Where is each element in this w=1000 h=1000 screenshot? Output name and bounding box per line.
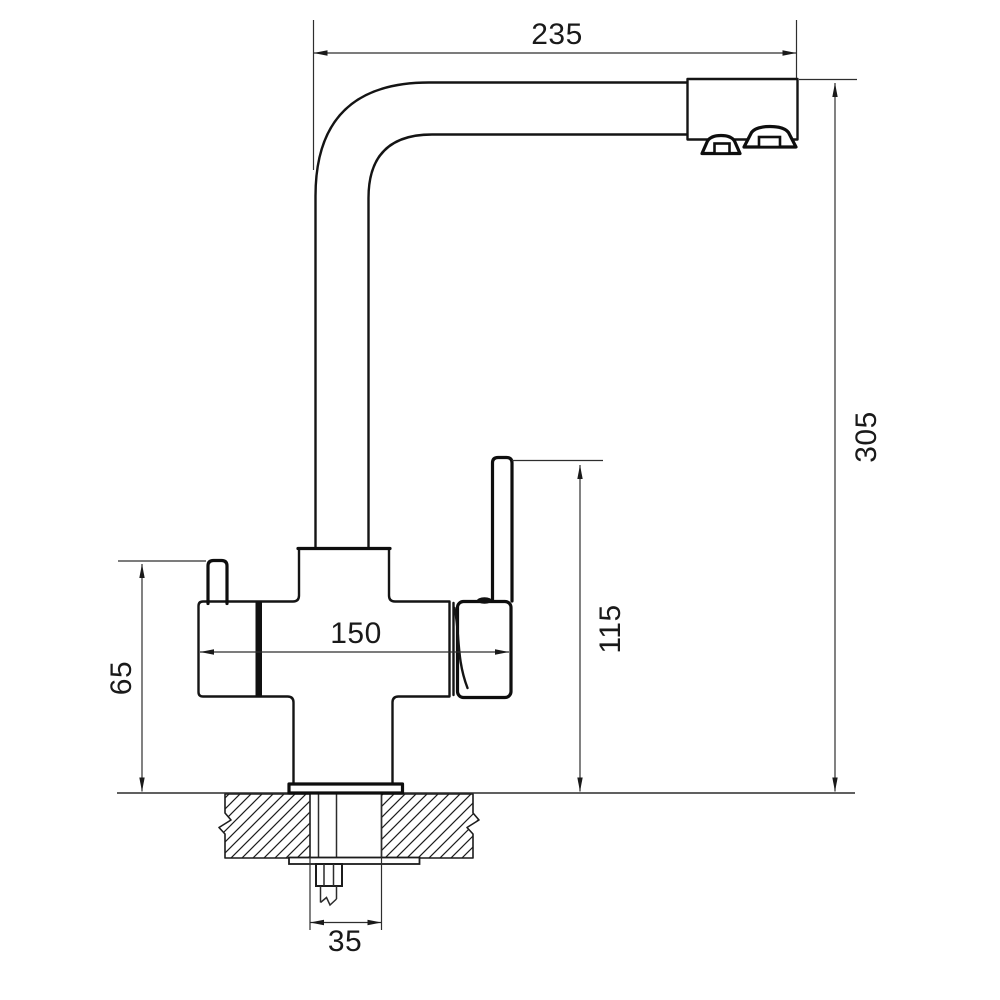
lever-pivot-dot [477,597,492,603]
dim-label-305: 305 [850,411,883,463]
spout-inner-line [369,135,691,549]
spout-outer-line [316,83,691,549]
dim-label-115: 115 [594,604,627,653]
dimension-left-lever-height: 65 [105,561,206,792]
dimension-handle-height: 115 [512,461,627,792]
arrowhead-right [783,50,797,55]
left-lever [208,561,227,604]
aerator-right-slot [759,137,780,147]
faucet-outline [199,79,798,793]
aerator-left-slot [715,144,730,154]
left-arm-collar [256,602,263,698]
mounting-nut [316,864,342,886]
mounting-washer [289,858,420,865]
dimension-overall-height: 305 [799,80,883,792]
dim-label-150: 150 [330,617,382,650]
dim-label-65: 65 [105,661,138,695]
dim-label-35: 35 [328,925,362,958]
countertop-slab-left [219,794,310,858]
countertop-slab-right [382,794,480,858]
faucet-dimension-drawing: 235 305 115 65 [0,0,1000,1000]
arrowhead-up [139,564,144,578]
arrowhead-up [832,83,837,97]
arrowhead-down [577,778,582,792]
right-lever [493,458,513,602]
arrowhead-left [314,50,328,55]
arrowhead-left [310,920,324,925]
arrowhead-right [368,920,382,925]
arrowhead-down [832,778,837,792]
arrowhead-down [139,778,144,792]
rod-break-line [321,898,337,906]
mounting-shank [319,794,337,857]
countertop [117,793,855,905]
base-flange [289,784,403,793]
technical-drawing-page: 235 305 115 65 [0,0,1000,1000]
arrowhead-up [577,465,582,479]
body-cross [199,549,450,786]
dim-label-235: 235 [531,18,583,51]
